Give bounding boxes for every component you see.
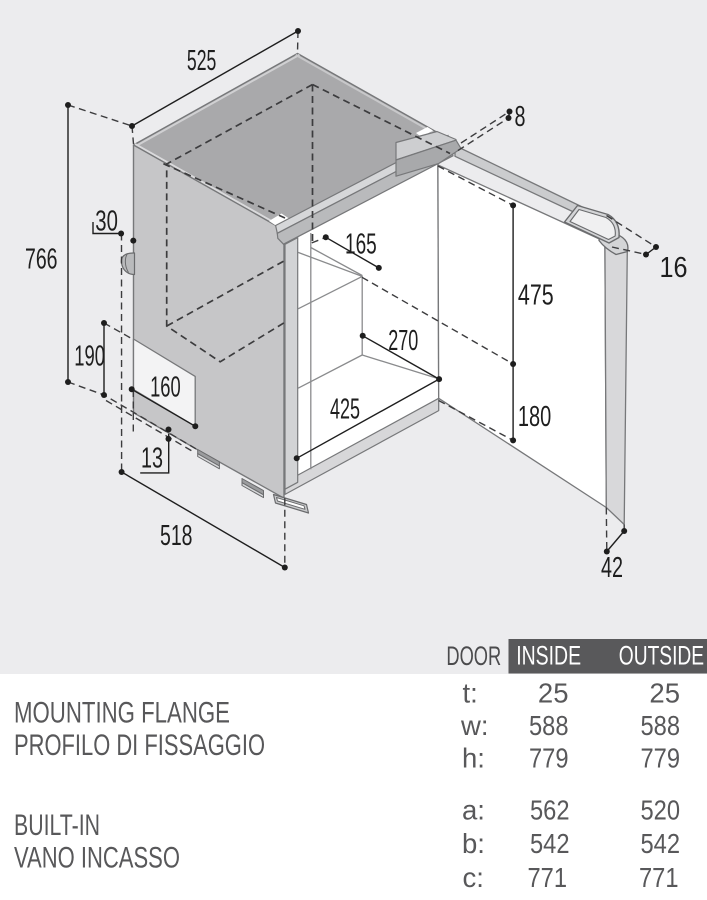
svg-text:165: 165 <box>345 228 377 260</box>
svg-text:OUTSIDE: OUTSIDE <box>619 641 704 671</box>
svg-text:b:: b: <box>462 828 485 859</box>
svg-text:520: 520 <box>641 795 681 826</box>
svg-text:25: 25 <box>538 678 569 709</box>
svg-text:a:: a: <box>462 795 485 826</box>
svg-text:8: 8 <box>515 101 526 133</box>
svg-text:270: 270 <box>388 325 418 357</box>
svg-text:588: 588 <box>641 710 681 741</box>
svg-text:425: 425 <box>330 393 360 425</box>
svg-text:30: 30 <box>95 205 118 237</box>
svg-text:t:: t: <box>463 678 478 709</box>
svg-text:42: 42 <box>601 552 623 584</box>
svg-text:562: 562 <box>530 795 570 826</box>
svg-text:PROFILO DI FISSAGGIO: PROFILO DI FISSAGGIO <box>14 729 265 762</box>
svg-text:16: 16 <box>660 252 688 284</box>
svg-text:779: 779 <box>529 743 569 774</box>
svg-text:588: 588 <box>529 710 569 741</box>
svg-text:518: 518 <box>160 520 193 552</box>
svg-text:779: 779 <box>641 743 681 774</box>
svg-text:180: 180 <box>518 401 551 433</box>
svg-text:160: 160 <box>150 371 181 403</box>
svg-text:190: 190 <box>74 341 105 373</box>
svg-text:771: 771 <box>528 862 568 893</box>
svg-text:w:: w: <box>460 710 489 741</box>
svg-text:c:: c: <box>463 862 484 893</box>
svg-text:13: 13 <box>141 443 163 475</box>
svg-text:542: 542 <box>530 828 570 859</box>
svg-text:475: 475 <box>518 279 554 311</box>
svg-text:542: 542 <box>641 828 681 859</box>
svg-text:h:: h: <box>462 743 485 774</box>
svg-text:771: 771 <box>639 862 679 893</box>
svg-text:MOUNTING FLANGE: MOUNTING FLANGE <box>14 697 230 730</box>
svg-text:VANO INCASSO: VANO INCASSO <box>14 842 180 875</box>
svg-text:INSIDE: INSIDE <box>516 641 581 671</box>
svg-text:DOOR: DOOR <box>446 641 501 671</box>
svg-text:766: 766 <box>25 244 58 276</box>
svg-text:BUILT-IN: BUILT-IN <box>14 809 100 842</box>
svg-text:25: 25 <box>649 678 680 709</box>
svg-text:525: 525 <box>187 45 216 77</box>
